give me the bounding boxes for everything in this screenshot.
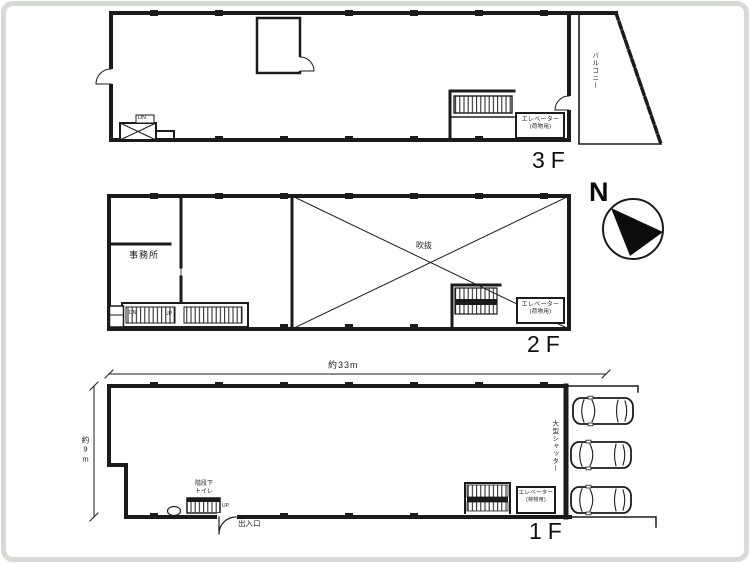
elevator-label-line1: エレベーター xyxy=(517,116,564,124)
elevator-label-line2: (荷物用) xyxy=(517,497,555,504)
parking-boundary xyxy=(565,386,638,392)
staircase xyxy=(454,96,512,113)
floor-3-outer-wall xyxy=(111,13,569,140)
site-edge xyxy=(570,517,656,527)
floor2-office-label: 事務所 xyxy=(129,250,159,261)
toilet-fixture xyxy=(168,507,181,516)
floor-3-plan xyxy=(96,10,661,144)
floor-1-plan xyxy=(90,370,656,534)
floor2-void-label: 吹抜 xyxy=(416,241,432,251)
door-gap xyxy=(107,69,115,84)
north-compass xyxy=(603,199,663,259)
floor1-entrance-label: 出入口 xyxy=(238,519,261,528)
compass-north-label: N xyxy=(589,176,609,208)
car-icon xyxy=(571,440,631,470)
floor1-stair-up-label: UP xyxy=(222,503,229,509)
width-dimension-line xyxy=(105,370,610,378)
floor2-stair-up-label: UP xyxy=(165,311,172,317)
floor3-title: 3F xyxy=(532,147,571,175)
door-gap xyxy=(297,57,303,71)
staircase-up xyxy=(184,307,242,323)
elevator-label-line2: (荷物用) xyxy=(517,124,564,131)
floor3-balcony-label: バルコニー xyxy=(590,52,598,90)
floor3-stair-down-label: DN xyxy=(138,115,146,122)
floor1-width-dimension: 約33m xyxy=(328,360,359,371)
floor1-title: 1F xyxy=(529,518,568,546)
depth-dimension-line xyxy=(90,382,98,521)
stair-top-band xyxy=(187,498,220,502)
floor3-elevator-label: エレベーター (荷物用) xyxy=(517,116,564,132)
floor2-stair-down-label: DN xyxy=(129,310,136,316)
floor1-stair-note: 階段下 トイレ xyxy=(184,481,224,497)
door-gap xyxy=(565,96,573,110)
small-room xyxy=(257,18,300,73)
staircase xyxy=(188,502,219,512)
elevator-label-line2: (荷物用) xyxy=(517,309,564,316)
stair-flight-upper xyxy=(467,485,508,497)
stair-landing-band xyxy=(467,497,508,502)
car-icon xyxy=(571,485,631,515)
floor-2-plan xyxy=(109,193,569,330)
left-wall xyxy=(109,386,126,517)
stair-landing-band xyxy=(455,299,497,305)
stair-note-line2: トイレ xyxy=(184,489,224,497)
stair-note-line1: 階段下 xyxy=(184,481,224,489)
stair-flight-lower xyxy=(467,502,508,511)
floor2-elevator-label: エレベーター (荷物用) xyxy=(517,301,564,317)
floor1-shutter-label: 大型シャッター xyxy=(550,420,558,473)
closet xyxy=(110,306,124,327)
floorplan-sheet: DN バルコニー エレベーター (荷物用) 3F N 事務所 吹抜 DN UP … xyxy=(0,0,750,563)
elevator-label-line1: エレベーター xyxy=(517,301,564,309)
floorplan-canvas xyxy=(0,0,750,563)
floor1-depth-dimension: 約9m xyxy=(81,436,90,465)
floor2-title: 2F xyxy=(527,331,566,359)
car-icon xyxy=(573,396,633,426)
floor1-elevator-label: エレベーター (荷物用) xyxy=(517,490,555,504)
